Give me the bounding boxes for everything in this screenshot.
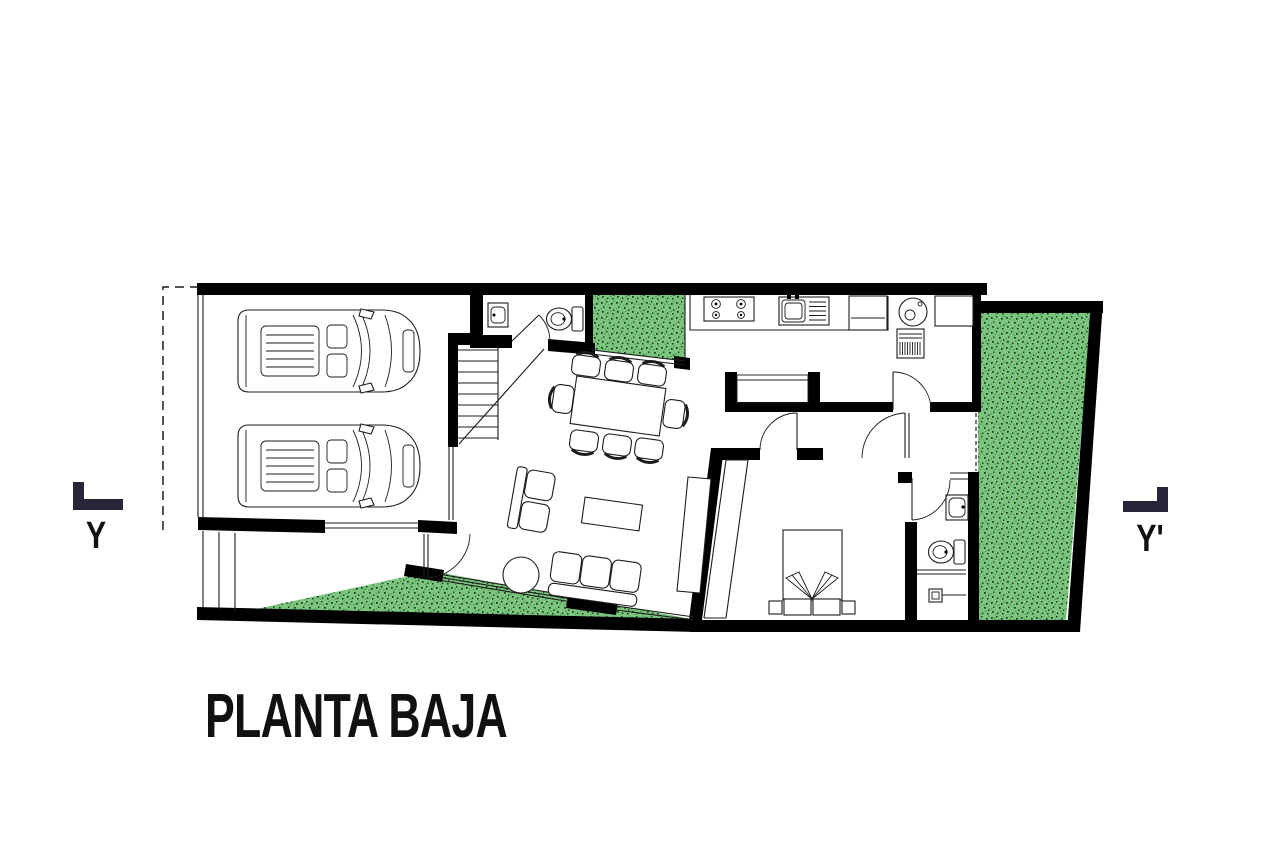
- title-group: PLANTA BAJA: [205, 682, 507, 751]
- shower-icon: [929, 589, 966, 602]
- garage-threshold: [325, 523, 418, 528]
- section-marker-right: Y': [1123, 487, 1168, 560]
- bed-bath-wall: [905, 522, 917, 622]
- garden-top-wall: [975, 301, 1103, 313]
- bottom-wall-right: [690, 620, 1080, 632]
- dining-chair: [604, 356, 635, 383]
- dryer-icon: [897, 329, 924, 358]
- round-side-table: [503, 557, 539, 593]
- garage-bottom-wall: [198, 517, 325, 533]
- powder-toilet: [547, 307, 584, 331]
- laundry: [897, 296, 973, 358]
- powder-room: [488, 303, 583, 331]
- section-cut-symbol-left: [73, 482, 123, 510]
- bed-pillows: [769, 599, 855, 615]
- dining-set: [548, 351, 690, 465]
- loveseat: [507, 466, 556, 534]
- bed: [783, 530, 842, 600]
- kitchen: [690, 291, 888, 330]
- dining-chair: [601, 433, 632, 460]
- dining-chair: [548, 383, 575, 414]
- hall-bottom-wall-right: [930, 402, 981, 412]
- bath-top-wall: [898, 472, 912, 483]
- laundry-door: [893, 372, 931, 410]
- bathroom: [929, 495, 969, 602]
- stove-icon: [704, 297, 754, 321]
- floor-plan-svg: Y Y' PLANTA BAJA: [0, 0, 1280, 858]
- garage: [238, 309, 420, 508]
- kitchen-sink-icon: [779, 291, 829, 325]
- bathroom-door: [912, 478, 950, 520]
- car-1: [238, 309, 420, 393]
- stairs-left-wall: [448, 345, 458, 447]
- stair-cut-line: [459, 349, 544, 444]
- top-wall: [197, 283, 987, 295]
- washing-machine-icon: [899, 298, 927, 326]
- car-2: [238, 424, 420, 508]
- powder-door: [512, 315, 550, 341]
- entry-post: [418, 520, 457, 534]
- page-title: PLANTA BAJA: [205, 682, 507, 751]
- stair-glass: [449, 447, 453, 520]
- section-label-right: Y': [1136, 518, 1164, 560]
- bath-window: [950, 473, 968, 479]
- bedroom-top-wall-right: [797, 448, 823, 460]
- laundry-counter: [935, 296, 973, 326]
- section-label-left: Y: [86, 515, 106, 557]
- staircase: [458, 345, 544, 444]
- section-cut-symbol-right: [1123, 487, 1168, 512]
- powder-bottom-wall-left: [470, 335, 512, 348]
- courtyard-post: [674, 356, 690, 370]
- garage-left-wall-lines: [198, 295, 203, 517]
- courtyard-left-wall: [585, 295, 593, 350]
- hall-bottom-wall: [725, 402, 893, 412]
- dining-chair: [568, 429, 599, 456]
- dining-chair: [633, 437, 664, 464]
- floor-plan-page: Y Y' PLANTA BAJA: [0, 0, 1280, 858]
- dining-chair: [662, 399, 689, 430]
- dining-chair: [637, 360, 668, 387]
- property-dashed-line: [163, 287, 197, 530]
- living-room: [503, 466, 711, 607]
- section-marker-left: Y: [73, 482, 123, 557]
- fence-lines: [203, 531, 235, 611]
- hall-closet: [737, 375, 808, 403]
- refrigerator-icon: [849, 296, 887, 330]
- bedroom-door: [760, 413, 797, 450]
- bath-divider: [917, 570, 966, 574]
- hall-door: [862, 413, 909, 458]
- bath-right-wall: [968, 472, 979, 622]
- coffee-table: [581, 497, 642, 531]
- bath-sink: [946, 495, 968, 520]
- bath-toilet: [929, 540, 966, 564]
